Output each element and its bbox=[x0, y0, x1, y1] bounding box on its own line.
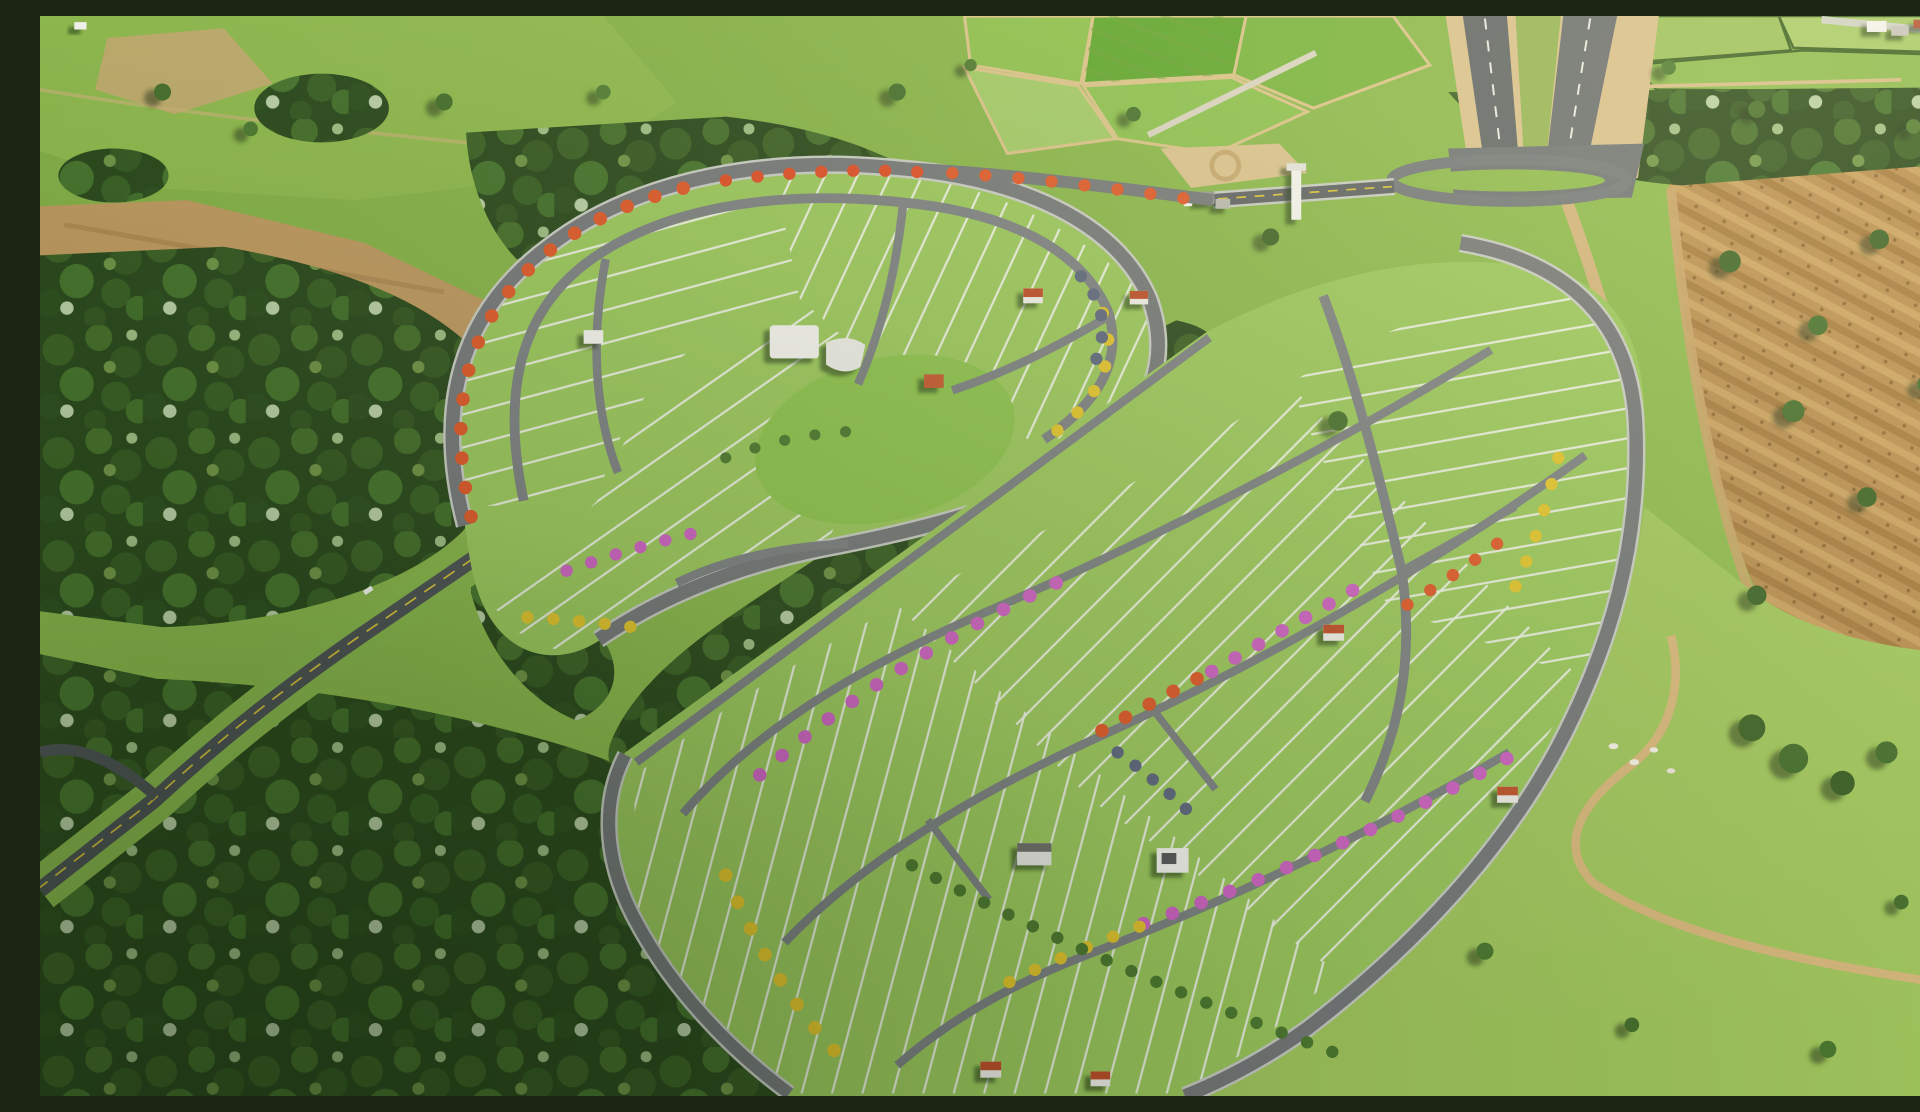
aerial-render bbox=[40, 16, 1920, 1096]
aerial-render-canvas bbox=[40, 16, 1920, 1096]
shadow-vignette bbox=[40, 16, 1920, 1096]
